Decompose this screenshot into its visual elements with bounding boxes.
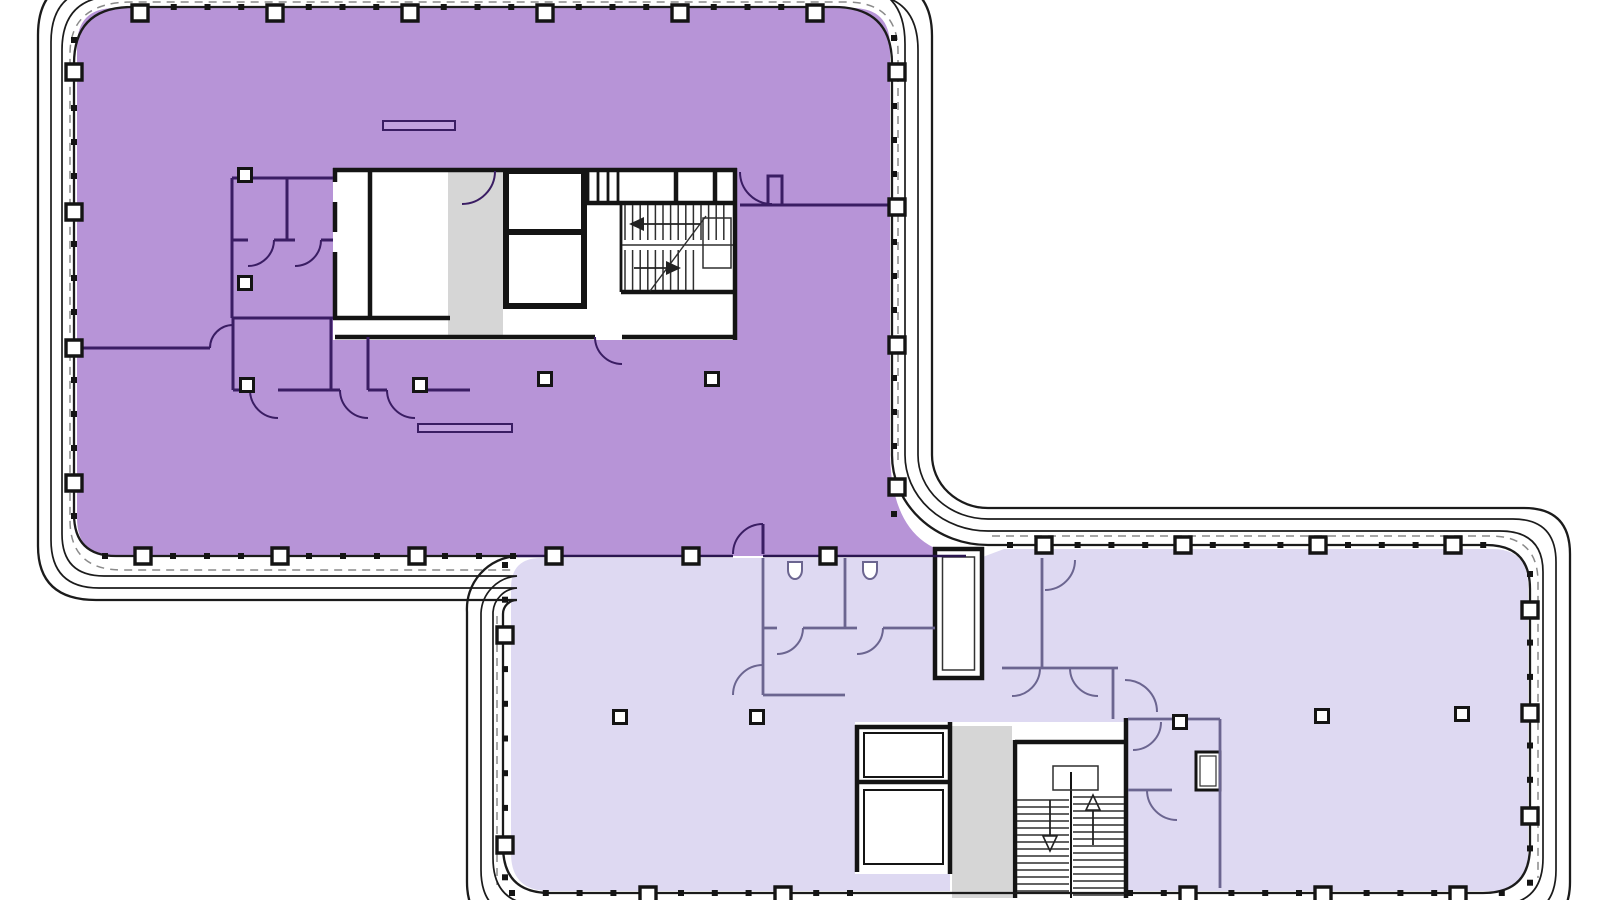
facade-tick bbox=[205, 4, 211, 10]
perimeter-column bbox=[272, 548, 288, 564]
facade-tick bbox=[71, 37, 77, 43]
perimeter-column bbox=[1450, 887, 1466, 900]
facade-tick bbox=[502, 701, 508, 707]
facade-tick bbox=[577, 890, 583, 896]
facade-tick bbox=[1379, 542, 1385, 548]
interior-column bbox=[751, 711, 764, 724]
interior-column bbox=[414, 379, 427, 392]
perimeter-column bbox=[1310, 537, 1326, 553]
facade-tick bbox=[306, 4, 312, 10]
perimeter-column bbox=[1445, 537, 1461, 553]
facade-tick bbox=[610, 4, 616, 10]
facade-tick bbox=[891, 35, 897, 41]
perimeter-column bbox=[672, 5, 688, 21]
facade-tick bbox=[891, 511, 897, 517]
facade-tick bbox=[1075, 542, 1081, 548]
facade-tick bbox=[502, 874, 508, 880]
perimeter-column bbox=[66, 340, 82, 356]
facade-tick bbox=[340, 4, 346, 10]
facade-tick bbox=[576, 4, 582, 10]
facade-tick bbox=[712, 890, 718, 896]
facade-tick bbox=[1007, 542, 1013, 548]
facade-tick bbox=[71, 445, 77, 451]
perimeter-column bbox=[683, 548, 699, 564]
floor-plan-page bbox=[0, 0, 1600, 900]
perimeter-column bbox=[1180, 887, 1196, 900]
facade-tick bbox=[1431, 890, 1437, 896]
facade-tick bbox=[374, 553, 380, 559]
facade-tick bbox=[502, 562, 508, 568]
perimeter-column bbox=[546, 548, 562, 564]
facade-tick bbox=[509, 890, 515, 896]
facade-tick bbox=[891, 409, 897, 415]
facade-tick bbox=[891, 375, 897, 381]
perimeter-column bbox=[66, 204, 82, 220]
facade-tick bbox=[891, 171, 897, 177]
perimeter-column bbox=[807, 5, 823, 21]
facade-tick bbox=[71, 377, 77, 383]
facade-tick bbox=[1277, 542, 1283, 548]
facade-tick bbox=[1296, 890, 1302, 896]
perimeter-column bbox=[132, 5, 148, 21]
facade-tick bbox=[71, 411, 77, 417]
perimeter-column bbox=[640, 887, 656, 900]
facade-tick bbox=[1262, 890, 1268, 896]
facade-tick bbox=[1527, 743, 1533, 749]
facade-tick bbox=[745, 4, 751, 10]
facade-tick bbox=[306, 553, 312, 559]
interior-column bbox=[241, 379, 254, 392]
facade-tick bbox=[475, 4, 481, 10]
counter-furniture-2 bbox=[418, 424, 512, 432]
facade-tick bbox=[1527, 674, 1533, 680]
facade-tick bbox=[102, 553, 108, 559]
perimeter-column bbox=[1175, 537, 1191, 553]
facade-tick bbox=[373, 4, 379, 10]
facade-tick bbox=[1244, 542, 1250, 548]
facade-tick bbox=[1228, 890, 1234, 896]
perimeter-column bbox=[402, 5, 418, 21]
facade-tick bbox=[1108, 542, 1114, 548]
counter-furniture-1 bbox=[383, 121, 455, 130]
interior-column bbox=[1316, 710, 1329, 723]
facade-tick bbox=[204, 553, 210, 559]
facade-tick bbox=[1527, 640, 1533, 646]
facade-tick bbox=[891, 239, 897, 245]
facade-tick bbox=[170, 553, 176, 559]
core-1-corridor bbox=[448, 172, 503, 337]
core-2-elevator-zone bbox=[855, 722, 950, 874]
facade-tick bbox=[502, 805, 508, 811]
perimeter-column bbox=[1522, 808, 1538, 824]
facade-tick bbox=[1413, 542, 1419, 548]
perimeter-column bbox=[409, 548, 425, 564]
perimeter-column bbox=[1522, 705, 1538, 721]
facade-tick bbox=[678, 890, 684, 896]
facade-tick bbox=[1127, 890, 1133, 896]
facade-tick bbox=[891, 273, 897, 279]
perimeter-column bbox=[889, 199, 905, 215]
facade-tick bbox=[711, 4, 717, 10]
facade-tick bbox=[1364, 890, 1370, 896]
facade-tick bbox=[441, 4, 447, 10]
facade-tick bbox=[502, 666, 508, 672]
elevator-2-cab bbox=[509, 235, 581, 303]
facade-tick bbox=[778, 4, 784, 10]
facade-tick bbox=[476, 553, 482, 559]
facade-tick bbox=[340, 553, 346, 559]
interior-column bbox=[614, 711, 627, 724]
perimeter-column bbox=[889, 64, 905, 80]
facade-tick bbox=[891, 443, 897, 449]
facade-tick bbox=[502, 597, 508, 603]
facade-tick bbox=[71, 309, 77, 315]
facade-tick bbox=[171, 4, 177, 10]
facade-tick bbox=[238, 553, 244, 559]
facade-tick bbox=[502, 770, 508, 776]
suite-fills-layer bbox=[77, 8, 1528, 891]
facade-tick bbox=[1527, 777, 1533, 783]
floor-plan-canvas bbox=[0, 0, 1600, 900]
facade-tick bbox=[71, 513, 77, 519]
elevator-1-cab bbox=[509, 174, 581, 229]
perimeter-column bbox=[66, 475, 82, 491]
interior-column bbox=[239, 169, 252, 182]
interior-column bbox=[706, 373, 719, 386]
perimeter-column bbox=[135, 548, 151, 564]
core-2-corridor bbox=[952, 726, 1012, 898]
facade-tick bbox=[643, 4, 649, 10]
perimeter-column bbox=[1036, 537, 1052, 553]
perimeter-column bbox=[820, 548, 836, 564]
facade-tick bbox=[502, 736, 508, 742]
facade-tick bbox=[71, 241, 77, 247]
facade-tick bbox=[1161, 890, 1167, 896]
facade-tick bbox=[1499, 890, 1505, 896]
facade-tick bbox=[442, 553, 448, 559]
perimeter-column bbox=[537, 5, 553, 21]
facade-tick bbox=[610, 890, 616, 896]
perimeter-column bbox=[66, 64, 82, 80]
facade-tick bbox=[891, 307, 897, 313]
perimeter-column bbox=[889, 479, 905, 495]
interior-column bbox=[539, 373, 552, 386]
facade-tick bbox=[746, 890, 752, 896]
facade-tick bbox=[510, 553, 516, 559]
facade-tick bbox=[1397, 890, 1403, 896]
facade-tick bbox=[1527, 880, 1533, 886]
facade-tick bbox=[847, 890, 853, 896]
core-1 bbox=[333, 168, 737, 340]
facade-tick bbox=[1527, 845, 1533, 851]
interior-column bbox=[239, 277, 252, 290]
perimeter-column bbox=[267, 5, 283, 21]
facade-tick bbox=[543, 890, 549, 896]
perimeter-column bbox=[889, 337, 905, 353]
facade-tick bbox=[238, 4, 244, 10]
perimeter-column bbox=[1315, 887, 1331, 900]
facade-tick bbox=[891, 103, 897, 109]
facade-tick bbox=[71, 105, 77, 111]
interior-column bbox=[1456, 708, 1469, 721]
facade-tick bbox=[508, 4, 514, 10]
perimeter-column bbox=[1522, 602, 1538, 618]
facade-tick bbox=[71, 139, 77, 145]
facade-tick bbox=[71, 275, 77, 281]
facade-tick bbox=[1142, 542, 1148, 548]
facade-tick bbox=[1210, 542, 1216, 548]
facade-tick bbox=[71, 173, 77, 179]
perimeter-column bbox=[497, 837, 513, 853]
core-2 bbox=[855, 718, 1128, 900]
facade-tick bbox=[1527, 571, 1533, 577]
facade-tick bbox=[813, 890, 819, 896]
facade-tick bbox=[1345, 542, 1351, 548]
facade-tick bbox=[891, 137, 897, 143]
facade-tick bbox=[1480, 542, 1486, 548]
interior-column bbox=[1174, 716, 1187, 729]
perimeter-column bbox=[497, 627, 513, 643]
perimeter-column bbox=[775, 887, 791, 900]
